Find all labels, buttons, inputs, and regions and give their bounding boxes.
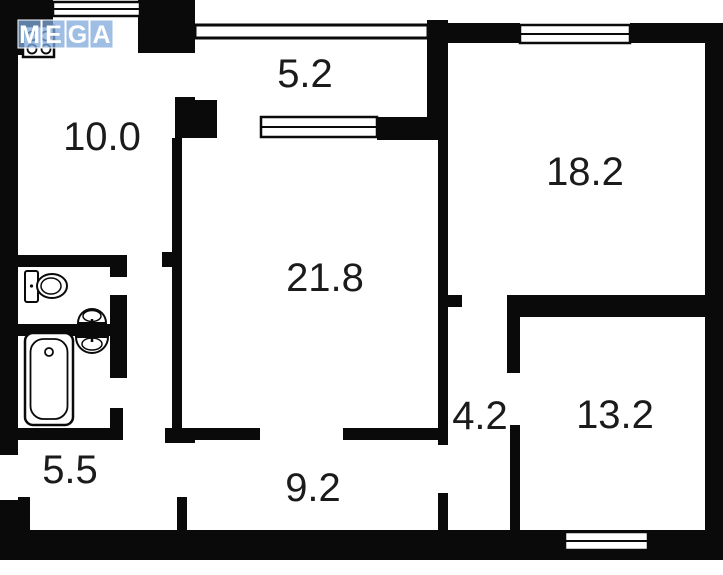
wall-lblock-horiz: [195, 100, 217, 138]
wall-lblock-vert: [175, 97, 195, 138]
window-kitchen-top: [53, 2, 140, 16]
toilet-icon: [25, 271, 67, 302]
fixtures: [23, 26, 108, 425]
wall-top-left-seg: [448, 23, 520, 43]
room-label-kitchen: 10.0: [63, 115, 141, 159]
wall-bedroom-door-jamb: [448, 295, 462, 307]
wall-kitchen-door-jamb: [162, 252, 172, 267]
wall-bath-bottom: [18, 428, 117, 440]
room-label-balcony: 5.2: [277, 52, 333, 96]
room-label-living-room: 21.8: [286, 256, 364, 300]
wall-kitchen-bottom: [18, 255, 127, 267]
bathtub-icon: [25, 333, 73, 425]
wall-left-upper: [0, 0, 18, 455]
wall-entry-jamb: [18, 497, 30, 530]
wall-center-stub: [438, 493, 448, 530]
wall-right: [705, 23, 723, 560]
wall-bedrooms-divider: [507, 295, 705, 317]
wall-hall-bedroom-upper: [507, 317, 520, 373]
window-bedroom-bottom: [565, 532, 648, 550]
wall-living-bottom-left: [183, 428, 260, 440]
wall-hall-bedroom-lower: [510, 425, 520, 530]
watermark-letter-a: A: [92, 21, 110, 49]
watermark-letter-m: M: [19, 21, 40, 49]
room-label-inner-hall: 4.2: [452, 394, 508, 438]
wall-center-vertical: [438, 135, 448, 445]
room-label-bedroom-bottom-right: 13.2: [576, 393, 654, 437]
wall-kitchen-balcony-block: [138, 0, 195, 53]
wall-wc-right: [110, 295, 127, 378]
watermark-logo: M E G A: [18, 20, 113, 49]
wall-hall-corridor-stub: [177, 497, 187, 530]
window-bedroom-top: [520, 25, 630, 43]
wall-living-bottom-right: [343, 428, 438, 440]
watermark-letter-g: G: [68, 21, 87, 49]
watermark-letter-e: E: [45, 21, 62, 49]
room-label-entry-hall: 5.5: [42, 448, 98, 492]
room-label-bedroom-top-right: 18.2: [546, 150, 624, 194]
wall-balcony-bottom-right: [377, 117, 438, 140]
room-label-corridor: 9.2: [285, 466, 341, 510]
balcony-railing: [195, 25, 428, 38]
floorplan-canvas: 10.0 5.2 21.8 18.2 4.2 13.2 5.5 9.2 M E …: [0, 0, 723, 575]
window-living-balcony: [261, 117, 377, 137]
wall-wc-corner: [110, 267, 127, 277]
floorplan-drawing: 10.0 5.2 21.8 18.2 4.2 13.2 5.5 9.2 M E …: [0, 0, 723, 575]
wall-kitchen-right-thin: [172, 138, 182, 430]
